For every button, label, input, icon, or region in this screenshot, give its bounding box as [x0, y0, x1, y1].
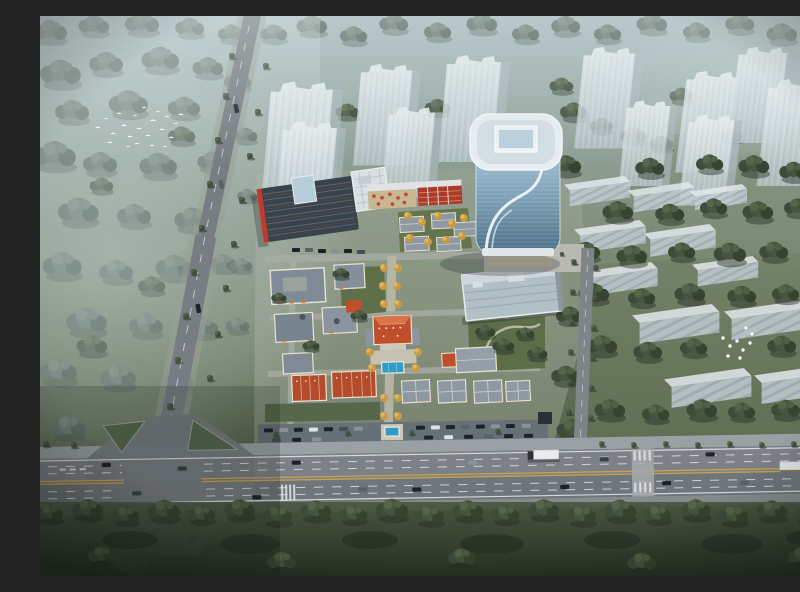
aerial-rendering: Aerial rendering of a mixed-use resident…	[40, 16, 800, 576]
atmosphere	[40, 16, 800, 576]
